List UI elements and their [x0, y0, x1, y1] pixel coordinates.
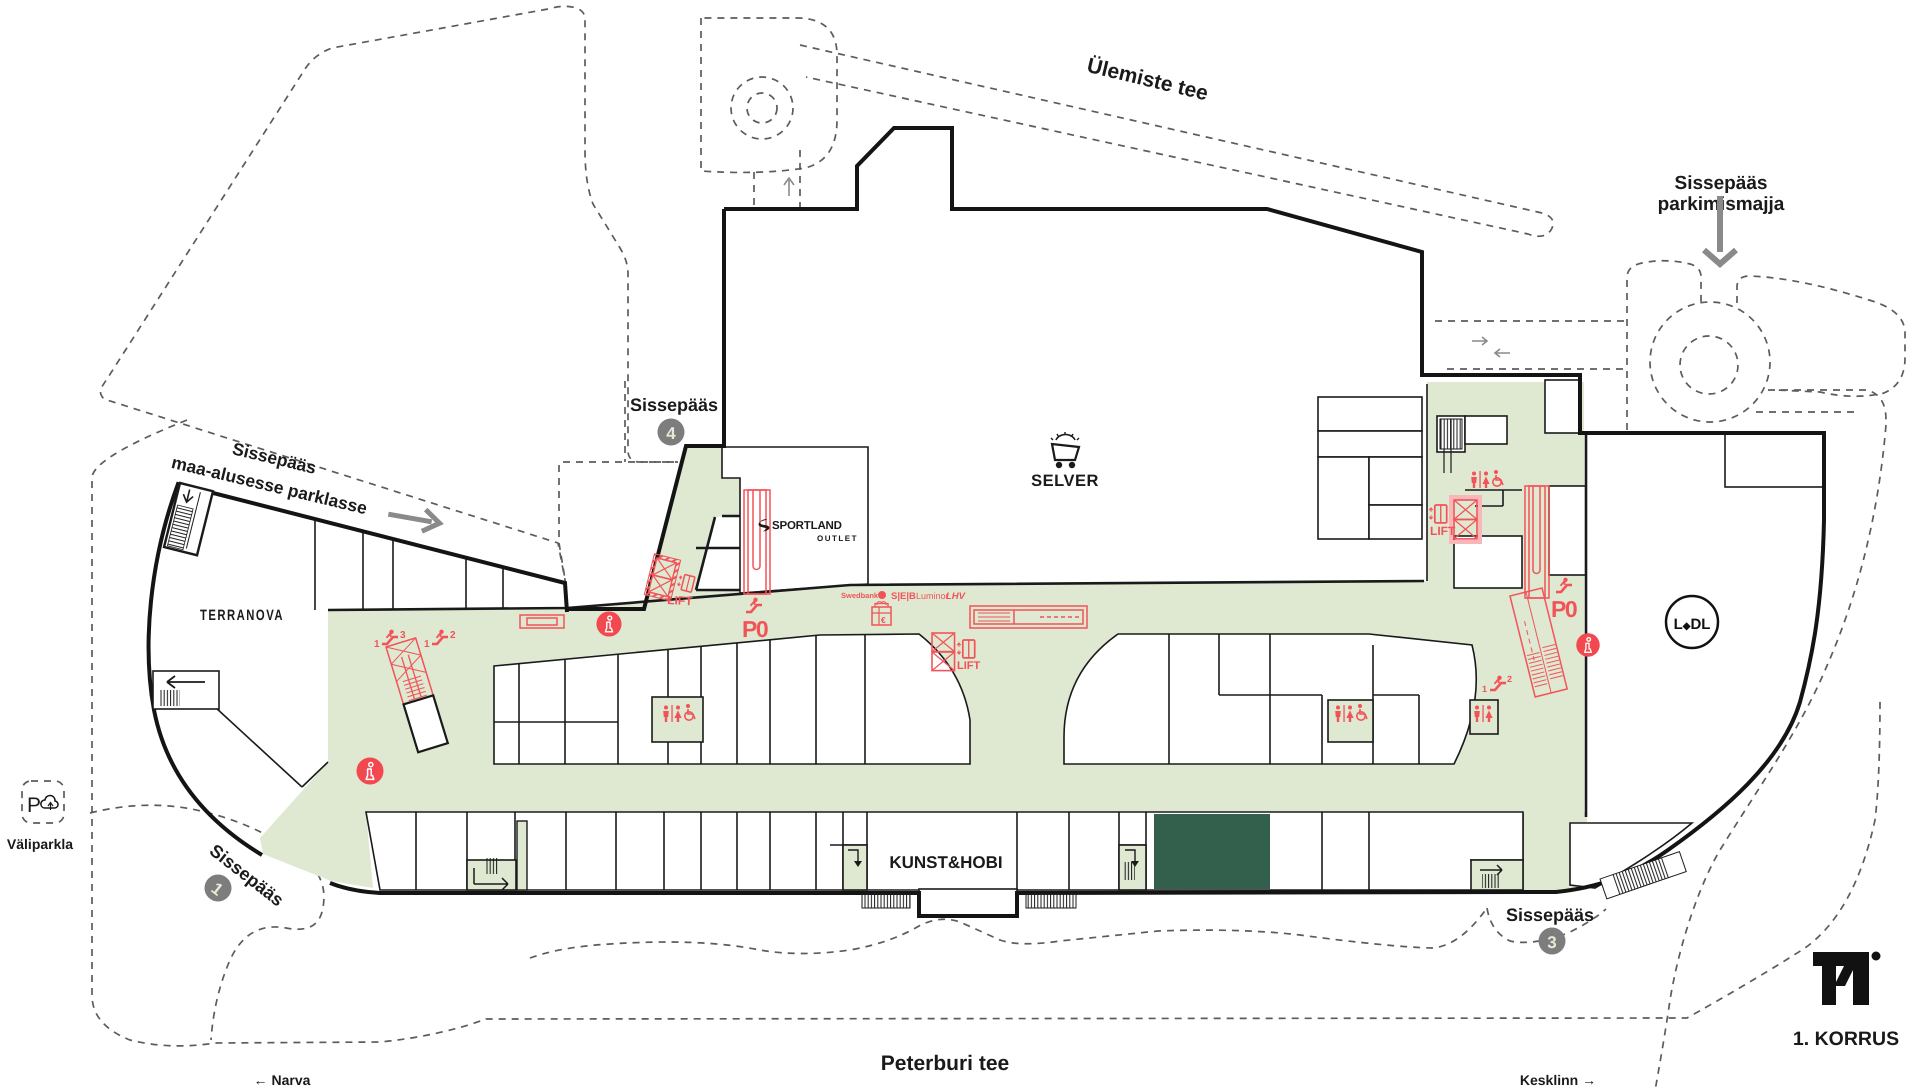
svg-text:LIFT: LIFT: [1430, 524, 1456, 538]
svg-text:P: P: [27, 794, 41, 817]
svg-text:← Narva: ← Narva: [254, 1072, 311, 1088]
svg-text:1: 1: [1482, 684, 1487, 694]
svg-text:Luminor: Luminor: [916, 591, 949, 601]
svg-text:LHV: LHV: [946, 591, 966, 602]
svg-text:TERRANOVA: TERRANOVA: [200, 607, 284, 624]
svg-text:OUTLET: OUTLET: [817, 534, 858, 543]
svg-text:Swedbank: Swedbank: [841, 591, 879, 600]
svg-text:LIFT: LIFT: [957, 660, 980, 672]
svg-text:P0: P0: [1551, 596, 1577, 622]
svg-text:SPORTLAND: SPORTLAND: [772, 520, 842, 532]
svg-text:2: 2: [450, 630, 456, 641]
svg-text:Kesklinn →: Kesklinn →: [1520, 1072, 1596, 1088]
svg-text:3: 3: [400, 630, 406, 641]
svg-text:Sissepääs: Sissepääs: [1506, 905, 1594, 925]
svg-text:P0: P0: [742, 616, 768, 642]
svg-text:2: 2: [1507, 674, 1512, 684]
svg-text:KUNST&HOBI: KUNST&HOBI: [889, 853, 1002, 872]
svg-text:Väliparkla: Väliparkla: [7, 836, 73, 852]
svg-text:LIFT: LIFT: [667, 593, 694, 608]
svg-text:Peterburi tee: Peterburi tee: [881, 1052, 1009, 1075]
svg-text:4: 4: [666, 424, 676, 443]
svg-text:1: 1: [374, 639, 380, 650]
svg-text:€: €: [881, 615, 886, 625]
svg-text:Sissepääs: Sissepääs: [630, 395, 718, 415]
svg-text:1. KORRUS: 1. KORRUS: [1793, 1028, 1899, 1050]
svg-text:L◆DL: L◆DL: [1674, 616, 1711, 633]
svg-text:1: 1: [424, 639, 430, 650]
svg-text:3: 3: [1547, 933, 1556, 952]
svg-text:SELVER: SELVER: [1031, 472, 1099, 490]
svg-text:Sissepääs: Sissepääs: [1675, 173, 1768, 194]
svg-text:S|E|B: S|E|B: [891, 591, 916, 602]
